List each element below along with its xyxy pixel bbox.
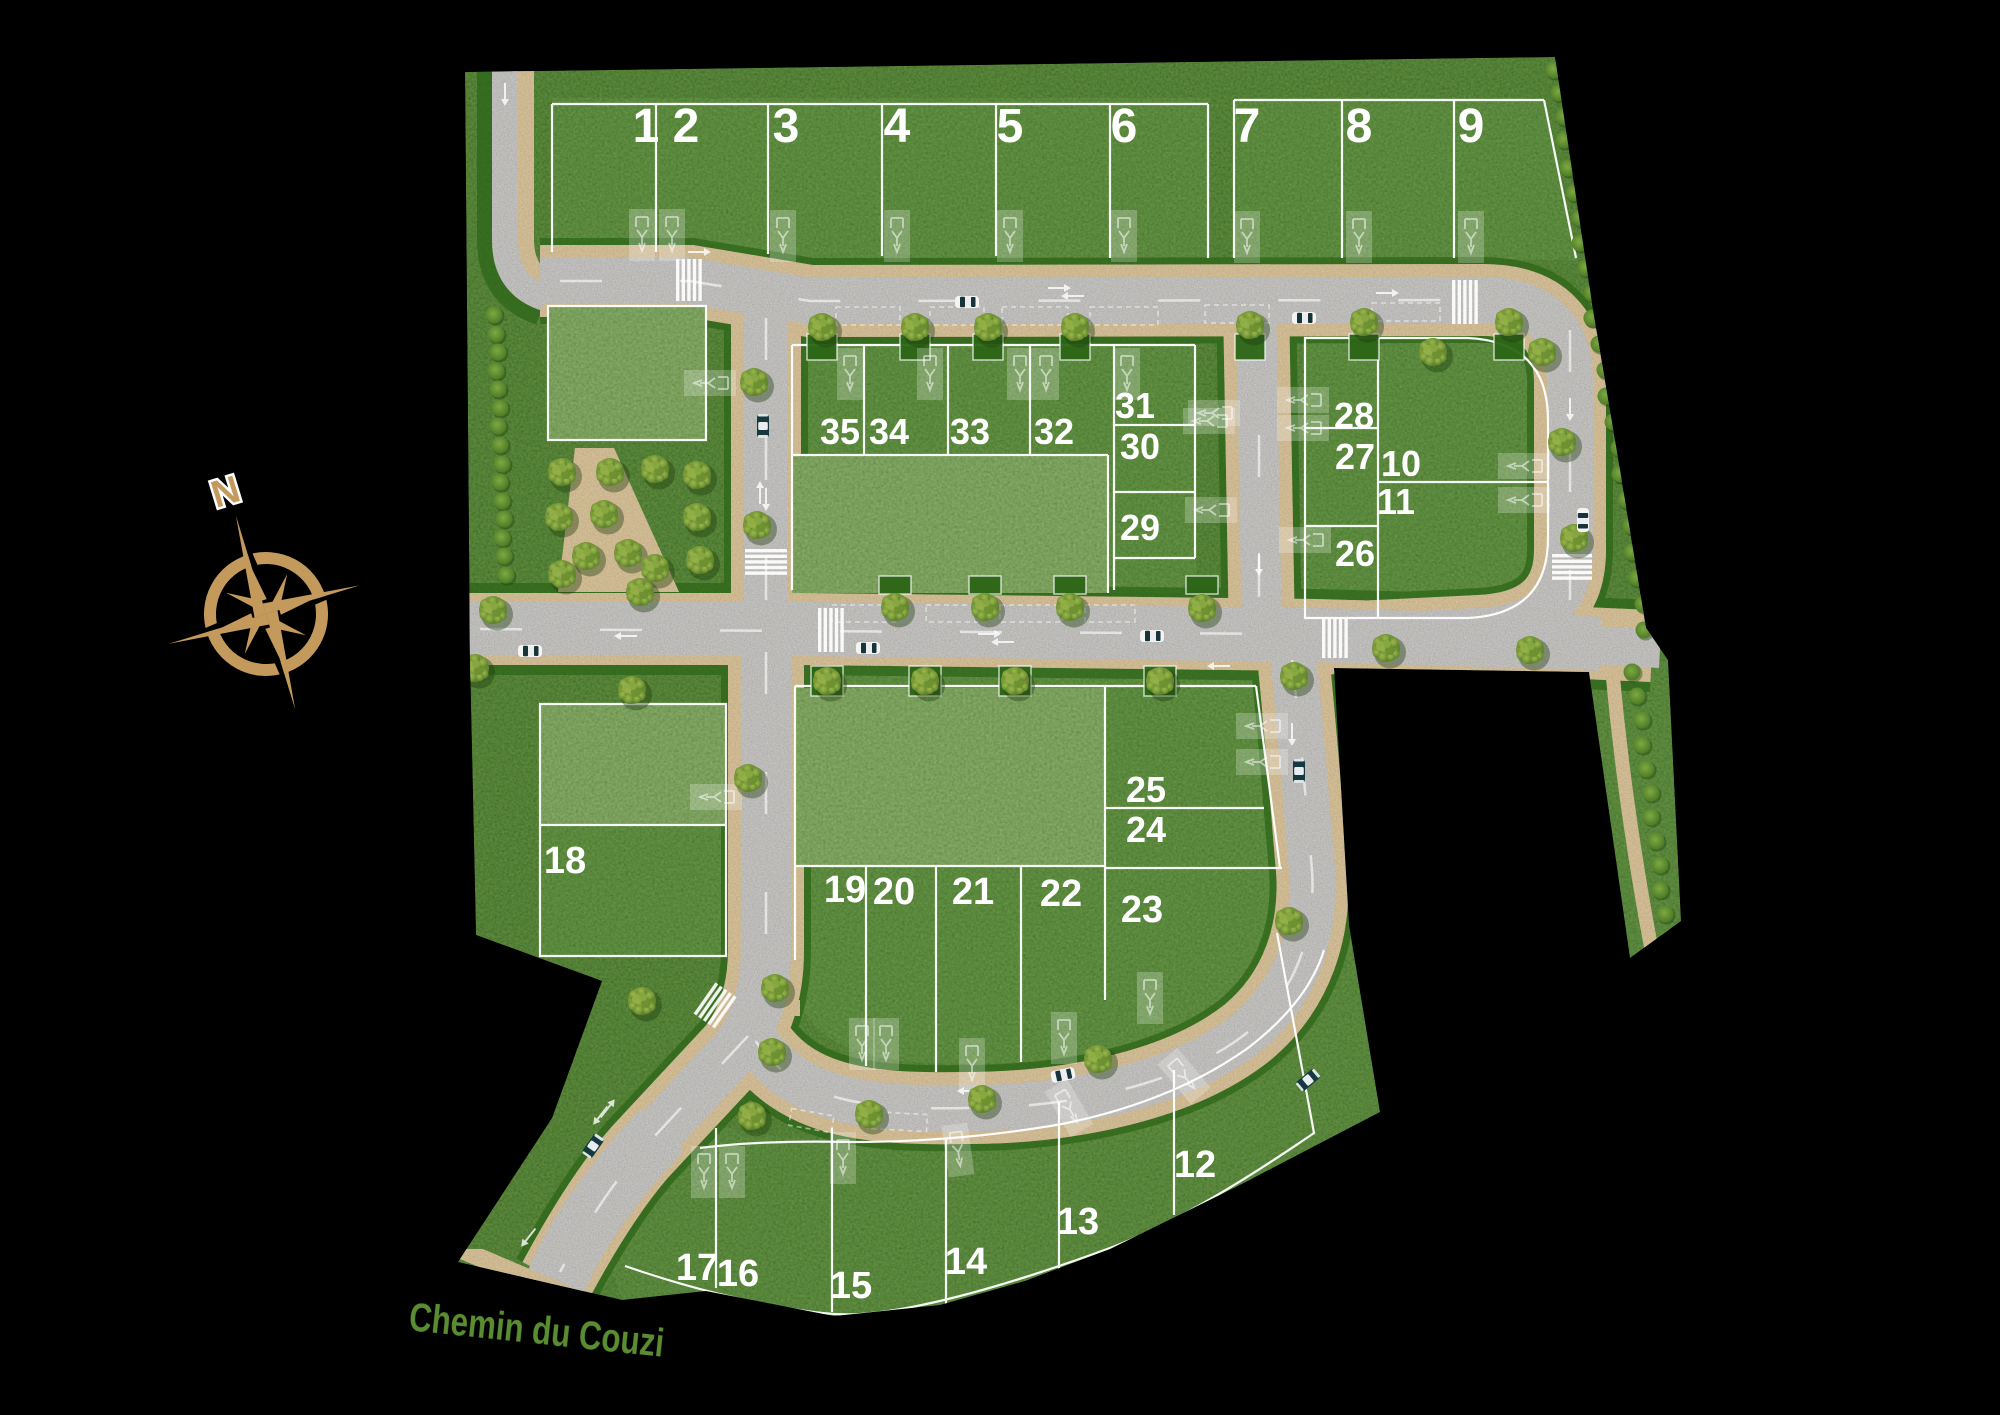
svg-text:24: 24 — [1126, 809, 1166, 850]
svg-text:23: 23 — [1121, 889, 1163, 931]
svg-text:12: 12 — [1174, 1144, 1216, 1186]
svg-text:34: 34 — [869, 411, 909, 452]
svg-text:13: 13 — [1057, 1201, 1099, 1243]
svg-text:27: 27 — [1335, 436, 1375, 477]
svg-text:4: 4 — [884, 100, 911, 153]
svg-text:33: 33 — [950, 411, 990, 452]
svg-text:15: 15 — [830, 1265, 872, 1307]
svg-text:32: 32 — [1034, 411, 1074, 452]
svg-text:29: 29 — [1120, 507, 1160, 548]
svg-text:28: 28 — [1334, 395, 1374, 436]
svg-text:18: 18 — [544, 840, 586, 882]
svg-text:9: 9 — [1458, 100, 1485, 153]
svg-text:14: 14 — [945, 1241, 987, 1283]
svg-text:7: 7 — [1234, 100, 1261, 153]
svg-text:21: 21 — [952, 871, 994, 913]
svg-text:20: 20 — [873, 871, 915, 913]
svg-text:16: 16 — [717, 1253, 759, 1295]
svg-text:35: 35 — [820, 411, 860, 452]
svg-text:3: 3 — [773, 100, 800, 153]
svg-text:31: 31 — [1115, 385, 1155, 426]
svg-text:25: 25 — [1126, 769, 1166, 810]
svg-text:8: 8 — [1346, 100, 1373, 153]
svg-text:17: 17 — [676, 1247, 718, 1289]
svg-text:30: 30 — [1120, 426, 1160, 467]
svg-text:2: 2 — [673, 100, 700, 153]
svg-text:6: 6 — [1111, 100, 1138, 153]
svg-text:19: 19 — [824, 869, 866, 911]
svg-text:22: 22 — [1040, 873, 1082, 915]
svg-text:5: 5 — [997, 100, 1024, 153]
svg-text:26: 26 — [1335, 533, 1375, 574]
svg-text:1: 1 — [633, 100, 660, 153]
svg-text:10: 10 — [1381, 443, 1421, 484]
svg-text:11: 11 — [1377, 481, 1415, 522]
